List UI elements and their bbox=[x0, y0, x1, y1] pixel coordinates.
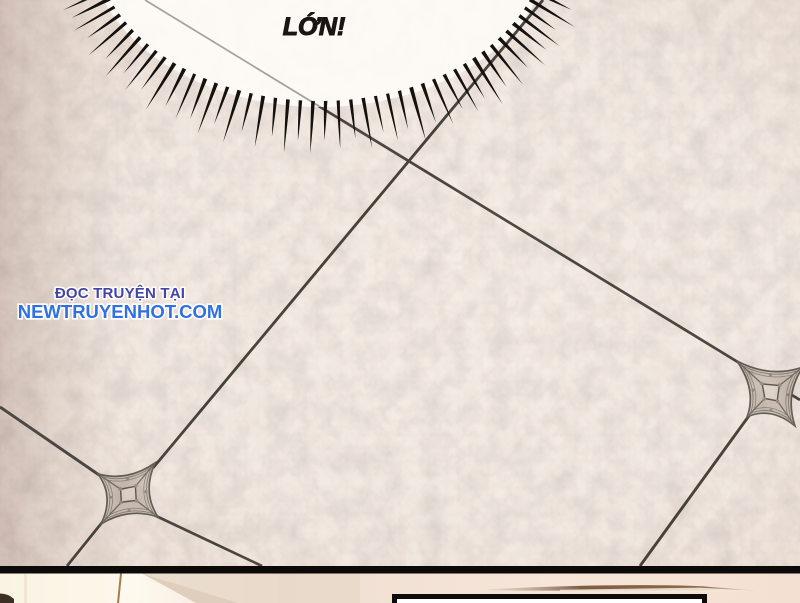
svg-text:ĐỌC TRUYỆN TẠI: ĐỌC TRUYỆN TẠI bbox=[55, 284, 185, 302]
svg-text:NEWTRUYENHOT.COM: NEWTRUYENHOT.COM bbox=[18, 301, 223, 322]
svg-text:LỚN!: LỚN! bbox=[283, 12, 346, 41]
